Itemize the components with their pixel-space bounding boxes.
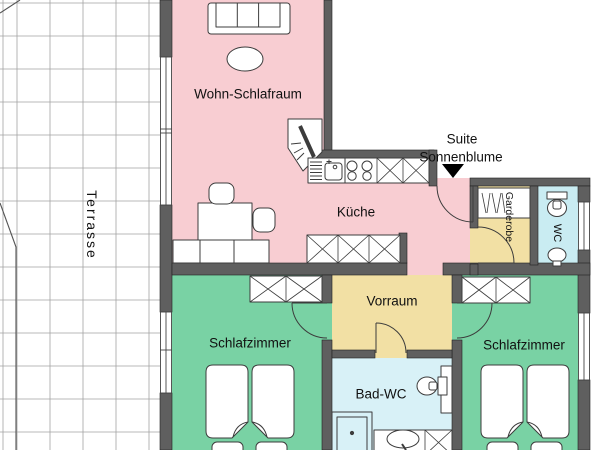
window-bedroom-left <box>160 312 172 393</box>
pillow <box>531 442 562 450</box>
room-vorraum <box>332 275 452 350</box>
bedroom-left-door-opening <box>322 303 332 340</box>
label-bad-wc: Bad-WC <box>355 387 406 402</box>
garderobe-door-opening <box>470 228 478 264</box>
bath-toilet-icon <box>417 377 447 395</box>
wardrobe-right <box>462 277 530 303</box>
dining-table <box>198 203 252 240</box>
label-suite-line1: Suite <box>447 132 478 147</box>
sideboard <box>173 240 269 263</box>
label-vorraum: Vorraum <box>366 294 417 309</box>
wardrobe-left <box>250 276 322 302</box>
wc-toilet-icon <box>547 192 567 217</box>
floor-plan-page: Terrasse <box>0 0 600 450</box>
terrace-grid <box>0 0 160 450</box>
kitchen-cabinet-row <box>307 235 400 263</box>
window-bedroom-right <box>579 313 590 380</box>
bedroom-right-door-opening <box>452 303 462 340</box>
label-suite-line2: Sonnenblume <box>419 150 502 165</box>
pillow <box>487 442 518 450</box>
badwc-door-opening <box>375 350 407 358</box>
label-kueche: Küche <box>337 205 375 220</box>
label-wc: WC <box>551 224 563 242</box>
floor-plan-svg: Terrasse <box>0 0 600 450</box>
sofa <box>208 3 290 34</box>
chair-top <box>209 183 234 204</box>
label-garderobe: Garderobe <box>503 192 515 242</box>
window-terrace-large <box>160 57 172 205</box>
vanity-washbasin <box>374 430 452 450</box>
corridor-vorraum-opening <box>407 263 443 275</box>
label-schlafzimmer-links: Schlafzimmer <box>209 336 291 351</box>
label-wohn-schlafraum: Wohn-Schlafraum <box>194 87 302 102</box>
label-terrasse: Terrasse <box>84 190 100 260</box>
terrace-area: Terrasse <box>0 0 160 450</box>
coffee-table <box>227 47 263 71</box>
entrance-opening <box>437 178 473 186</box>
pillow <box>212 442 243 450</box>
pillow <box>256 442 287 450</box>
window-wc <box>579 202 590 250</box>
label-schlafzimmer-rechts: Schlafzimmer <box>483 338 565 353</box>
chair-right <box>253 208 275 232</box>
